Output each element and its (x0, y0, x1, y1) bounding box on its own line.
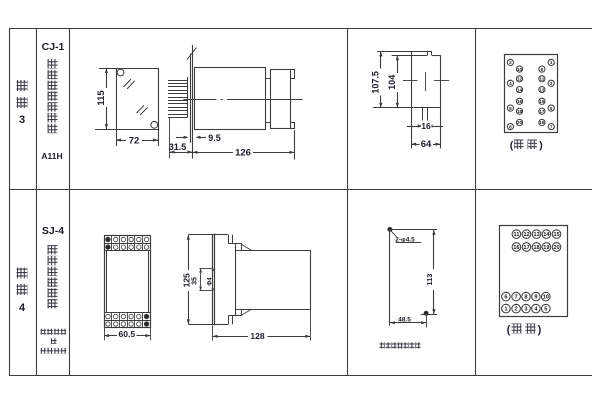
svg-text:10: 10 (543, 295, 549, 301)
svg-text:18: 18 (517, 109, 523, 114)
svg-text:17: 17 (539, 109, 545, 114)
svg-text:2: 2 (515, 307, 518, 313)
svg-text:Φ4: Φ4 (208, 277, 214, 286)
svg-text:115: 115 (96, 90, 107, 106)
svg-text:(: ( (510, 140, 514, 152)
svg-text:(: ( (507, 324, 511, 336)
svg-text:6: 6 (504, 295, 507, 301)
svg-text:9: 9 (534, 295, 537, 301)
svg-text:19: 19 (539, 120, 545, 125)
svg-text:16: 16 (513, 245, 519, 251)
svg-text:A11H: A11H (41, 151, 62, 161)
svg-text:12: 12 (523, 232, 529, 238)
svg-text:11: 11 (513, 232, 519, 238)
svg-text:3: 3 (550, 81, 553, 86)
svg-text:15: 15 (539, 99, 545, 104)
svg-text:14: 14 (543, 232, 550, 238)
svg-text:5: 5 (550, 106, 553, 111)
svg-text:18: 18 (533, 245, 539, 251)
svg-text:17: 17 (523, 245, 529, 251)
svg-text:126: 126 (235, 147, 251, 158)
svg-text:35: 35 (191, 277, 198, 285)
svg-text:7: 7 (515, 295, 518, 301)
svg-text:CJ-1: CJ-1 (42, 41, 65, 53)
svg-text:16: 16 (517, 99, 523, 104)
svg-text:128: 128 (250, 331, 264, 341)
svg-text:13: 13 (533, 232, 539, 238)
svg-text:125: 125 (181, 273, 191, 287)
svg-text:48.5: 48.5 (398, 316, 411, 323)
svg-text:4: 4 (19, 302, 26, 314)
svg-text:1: 1 (550, 60, 553, 65)
svg-text:104: 104 (387, 75, 397, 90)
svg-text:10: 10 (517, 67, 523, 72)
svg-text:12: 12 (517, 77, 523, 82)
svg-text:): ) (539, 140, 543, 152)
svg-text:8: 8 (509, 124, 512, 129)
svg-text:9: 9 (541, 67, 544, 72)
svg-text:16: 16 (421, 121, 431, 131)
svg-text:): ) (538, 324, 542, 336)
svg-text:13: 13 (539, 87, 545, 92)
svg-text:4: 4 (509, 81, 512, 86)
svg-text:9.5: 9.5 (208, 133, 221, 143)
svg-text:2: 2 (509, 60, 512, 65)
svg-text:14: 14 (517, 87, 523, 92)
svg-text:60.5: 60.5 (119, 329, 136, 339)
svg-text:3: 3 (19, 114, 25, 126)
svg-text:31.5: 31.5 (169, 142, 187, 152)
svg-text:19: 19 (543, 245, 549, 251)
svg-text:113: 113 (425, 274, 434, 286)
svg-text:5: 5 (544, 307, 547, 313)
svg-text:6: 6 (509, 106, 512, 111)
svg-text:3: 3 (524, 307, 527, 313)
svg-text:107.5: 107.5 (370, 71, 380, 94)
svg-text:15: 15 (553, 232, 559, 238)
svg-text:7: 7 (550, 124, 553, 129)
svg-text:8: 8 (524, 295, 527, 301)
svg-text:11: 11 (539, 77, 544, 82)
svg-text:20: 20 (517, 120, 523, 125)
svg-text:20: 20 (553, 245, 559, 251)
svg-text:72: 72 (129, 136, 140, 147)
svg-text:SJ-4: SJ-4 (42, 225, 64, 237)
svg-text:1: 1 (504, 307, 507, 313)
svg-text:64: 64 (421, 139, 432, 150)
